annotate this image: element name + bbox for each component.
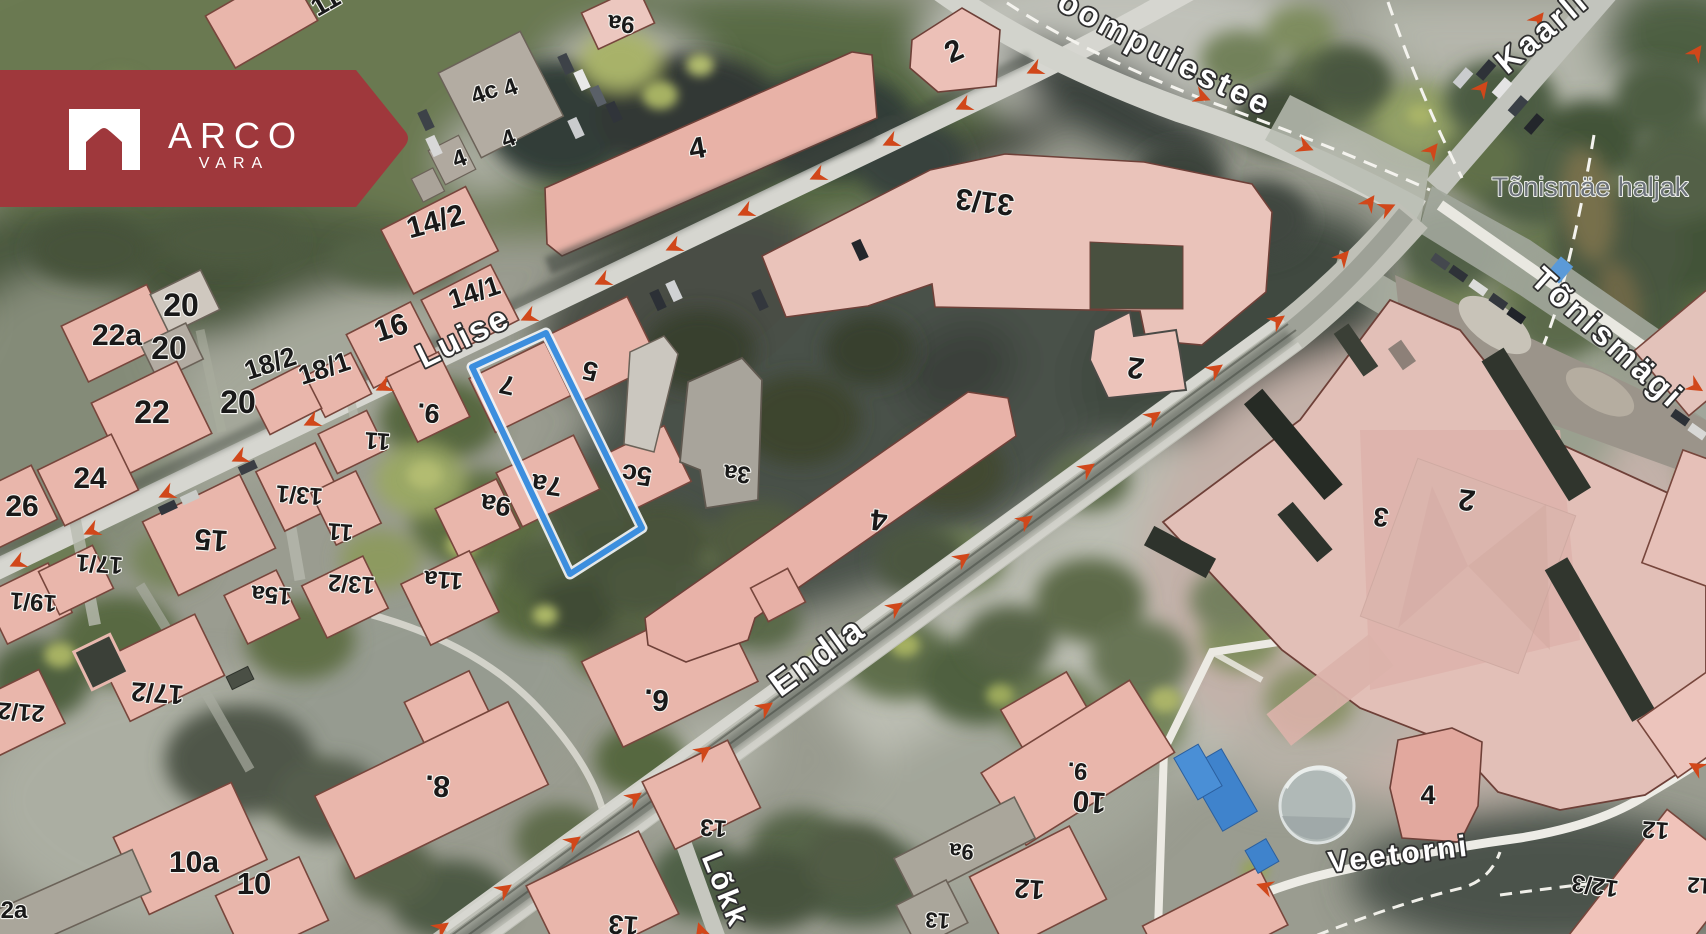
svg-text:5c: 5c [620,458,654,492]
svg-text:22a: 22a [92,319,142,352]
svg-text:3a: 3a [722,459,752,489]
svg-text:13: 13 [699,813,728,842]
svg-text:31/3: 31/3 [954,181,1016,221]
svg-text:11a: 11a [423,565,464,595]
svg-text:9a: 9a [478,488,513,522]
svg-text:VARA: VARA [199,155,269,172]
svg-text:13/2: 13/2 [327,568,375,598]
svg-text:10a: 10a [169,846,219,879]
svg-text:20: 20 [220,384,256,420]
svg-text:6.: 6. [643,682,670,717]
svg-text:15: 15 [194,522,230,557]
svg-text:20: 20 [151,330,187,366]
svg-text:7a: 7a [529,468,564,502]
svg-text:26: 26 [5,490,38,523]
svg-text:8.: 8. [424,768,451,803]
svg-text:15a: 15a [250,580,292,610]
svg-text:24: 24 [73,462,107,495]
svg-text:9.: 9. [1067,756,1089,784]
svg-text:9a: 9a [606,9,636,38]
svg-text:22: 22 [134,394,170,430]
svg-text:13: 13 [607,909,639,934]
svg-text:13: 13 [924,907,950,934]
svg-text:13/1: 13/1 [275,479,323,509]
svg-text:21/2: 21/2 [0,696,46,726]
svg-text:11: 11 [327,517,354,546]
svg-text:11: 11 [364,426,391,455]
svg-text:17/2: 17/2 [130,676,185,710]
svg-text:Tõnismäe haljak: Tõnismäe haljak [1492,172,1689,202]
svg-text:9.: 9. [416,397,441,428]
svg-text:12: 12 [1686,872,1706,899]
svg-text:ARCO: ARCO [168,115,304,156]
svg-text:12: 12 [1013,873,1045,905]
svg-text:20: 20 [163,287,199,323]
svg-text:10: 10 [237,866,271,901]
svg-text:19/1: 19/1 [9,586,57,616]
svg-text:17/1: 17/1 [75,548,123,578]
svg-text:4: 4 [1420,780,1435,810]
svg-text:2a: 2a [1,897,28,924]
svg-text:9a: 9a [948,838,975,865]
svg-text:10: 10 [1072,784,1108,819]
svg-text:12: 12 [1641,815,1670,844]
